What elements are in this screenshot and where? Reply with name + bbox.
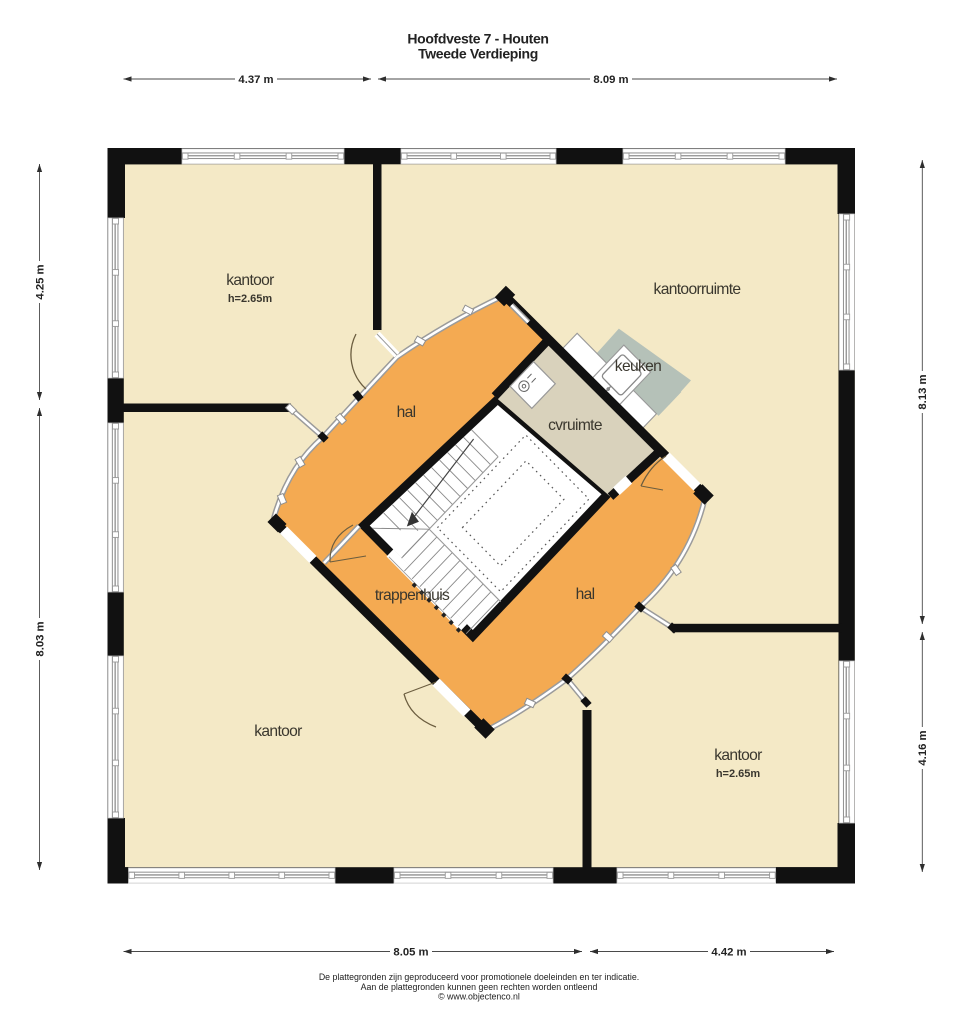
svg-text:h=2.65m: h=2.65m xyxy=(228,293,273,305)
svg-text:8.05 m: 8.05 m xyxy=(393,946,428,958)
svg-text:kantoorruimte: kantoorruimte xyxy=(654,281,741,298)
svg-text:© www.objectenco.nl: © www.objectenco.nl xyxy=(438,992,520,1002)
svg-text:8.09 m: 8.09 m xyxy=(593,74,628,86)
svg-text:4.42 m: 4.42 m xyxy=(711,946,746,958)
svg-text:8.03 m: 8.03 m xyxy=(34,621,46,656)
svg-text:cvruimte: cvruimte xyxy=(548,417,602,434)
svg-text:keuken: keuken xyxy=(615,358,661,375)
svg-text:kantoor: kantoor xyxy=(226,272,274,289)
svg-text:Tweede Verdieping: Tweede Verdieping xyxy=(418,45,538,61)
svg-text:kantoor: kantoor xyxy=(714,747,762,764)
svg-text:hal: hal xyxy=(397,404,416,421)
svg-text:trappenhuis: trappenhuis xyxy=(375,587,450,604)
svg-text:4.37 m: 4.37 m xyxy=(238,74,273,86)
svg-text:hal: hal xyxy=(576,586,595,603)
svg-text:4.16 m: 4.16 m xyxy=(917,730,929,765)
svg-text:De plattegronden zijn geproduc: De plattegronden zijn geproduceerd voor … xyxy=(319,972,639,982)
svg-text:h=2.65m: h=2.65m xyxy=(716,768,761,780)
svg-text:8.13 m: 8.13 m xyxy=(917,374,929,409)
svg-text:kantoor: kantoor xyxy=(254,723,302,740)
svg-text:Aan de plattegronden kunnen ge: Aan de plattegronden kunnen geen rechten… xyxy=(361,982,598,992)
svg-text:4.25 m: 4.25 m xyxy=(34,264,46,299)
svg-text:Hoofdveste 7 - Houten: Hoofdveste 7 - Houten xyxy=(407,30,548,46)
